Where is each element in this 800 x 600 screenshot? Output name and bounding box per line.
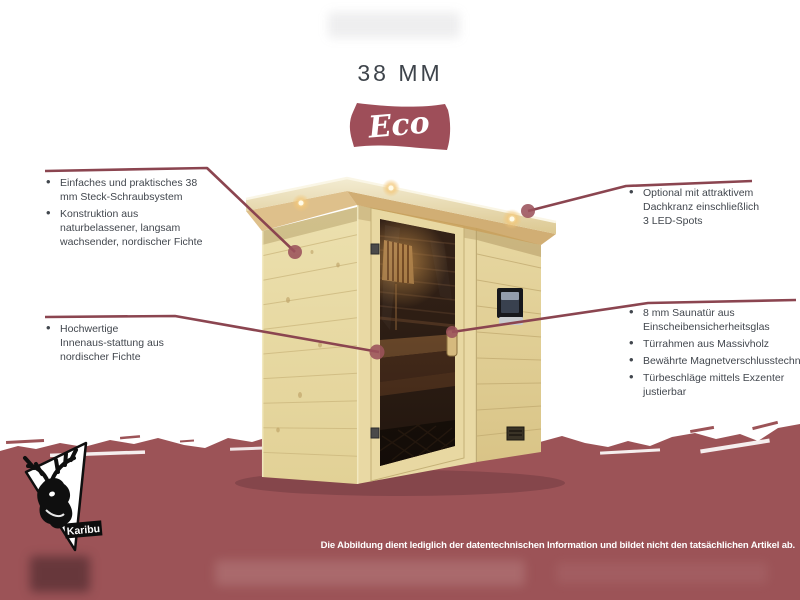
logo-wordmark: Karibu	[64, 520, 102, 538]
door-hinge-top	[371, 244, 379, 254]
right-wall	[477, 228, 541, 462]
disclaimer-text: Die Abbildung dient lediglich der datent…	[321, 540, 795, 551]
sauna-illustration	[235, 178, 565, 496]
door-frame	[371, 208, 464, 481]
door-face	[356, 205, 477, 484]
blur-smudge-right	[556, 562, 768, 584]
ground-shadow	[235, 470, 565, 496]
wood-knots	[276, 250, 340, 433]
annotation-item: 8 mm Saunatür aus Einscheibensicherheits…	[628, 306, 800, 334]
annotation-left-construction: Einfaches und praktisches 38 mm Steck-Sc…	[45, 176, 217, 252]
annotation-item: Türbeschläge mittels Exzenter justierbar	[628, 371, 800, 399]
roof-crown	[246, 178, 556, 245]
dot-interior	[370, 345, 385, 360]
brush-gaps	[50, 439, 770, 458]
annotation-item: Einfaches und praktisches 38 mm Steck-Sc…	[45, 176, 217, 204]
floor-grate	[378, 420, 458, 466]
karibu-logo: Karibu	[12, 432, 122, 572]
annotation-item: Türrahmen aus Massivholz	[628, 337, 800, 351]
callout-dots	[288, 204, 535, 360]
annotation-item: Konstruktion aus naturbelassener, langsa…	[45, 207, 217, 249]
door-handle	[447, 330, 457, 356]
door-hinge-bottom	[371, 428, 379, 438]
dot-door	[446, 326, 458, 338]
annotation-item: Hochwertige Innenaus-stattung aus nordis…	[45, 322, 167, 364]
bench	[380, 334, 455, 396]
door-glass-interior	[356, 216, 458, 466]
dot-wall	[288, 245, 302, 259]
blur-smudge-center	[215, 560, 525, 586]
left-wall	[262, 207, 357, 484]
led-spots	[292, 179, 522, 229]
annotation-right-roof: Optional mit attraktivem Dachkranz einsc…	[628, 186, 760, 231]
annotation-item: Bewährte Magnetverschlusstechnik	[628, 354, 800, 368]
annotation-item: Optional mit attraktivem Dachkranz einsc…	[628, 186, 760, 228]
annotation-left-interior: Hochwertige Innenaus-stattung aus nordis…	[45, 322, 167, 367]
dot-roof	[521, 204, 535, 218]
page-title: 38 MM	[0, 60, 800, 87]
catalog-page: 38 MM Eco Einfaches und praktisches 38 m…	[0, 0, 800, 600]
blur-smudge-top	[328, 12, 460, 38]
control-panel	[497, 288, 523, 325]
vent-hatch	[507, 427, 524, 440]
sauna-lamp	[382, 240, 414, 330]
annotation-right-door: 8 mm Saunatür aus Einscheibensicherheits…	[628, 306, 800, 402]
